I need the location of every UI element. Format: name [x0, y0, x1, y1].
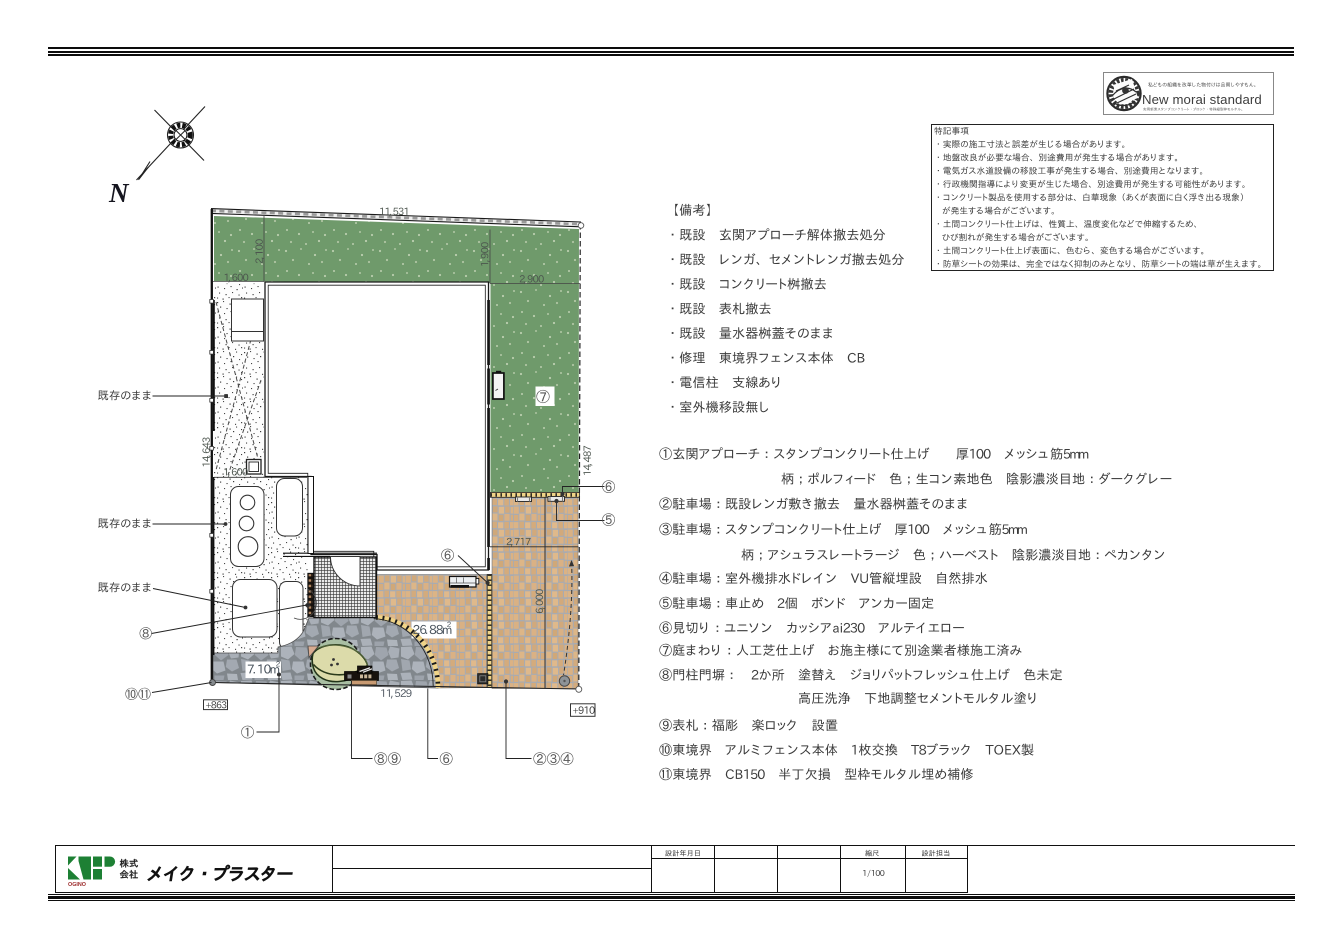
- svg-text:N: N: [108, 178, 130, 208]
- svg-text:OGINO: OGINO: [68, 882, 86, 888]
